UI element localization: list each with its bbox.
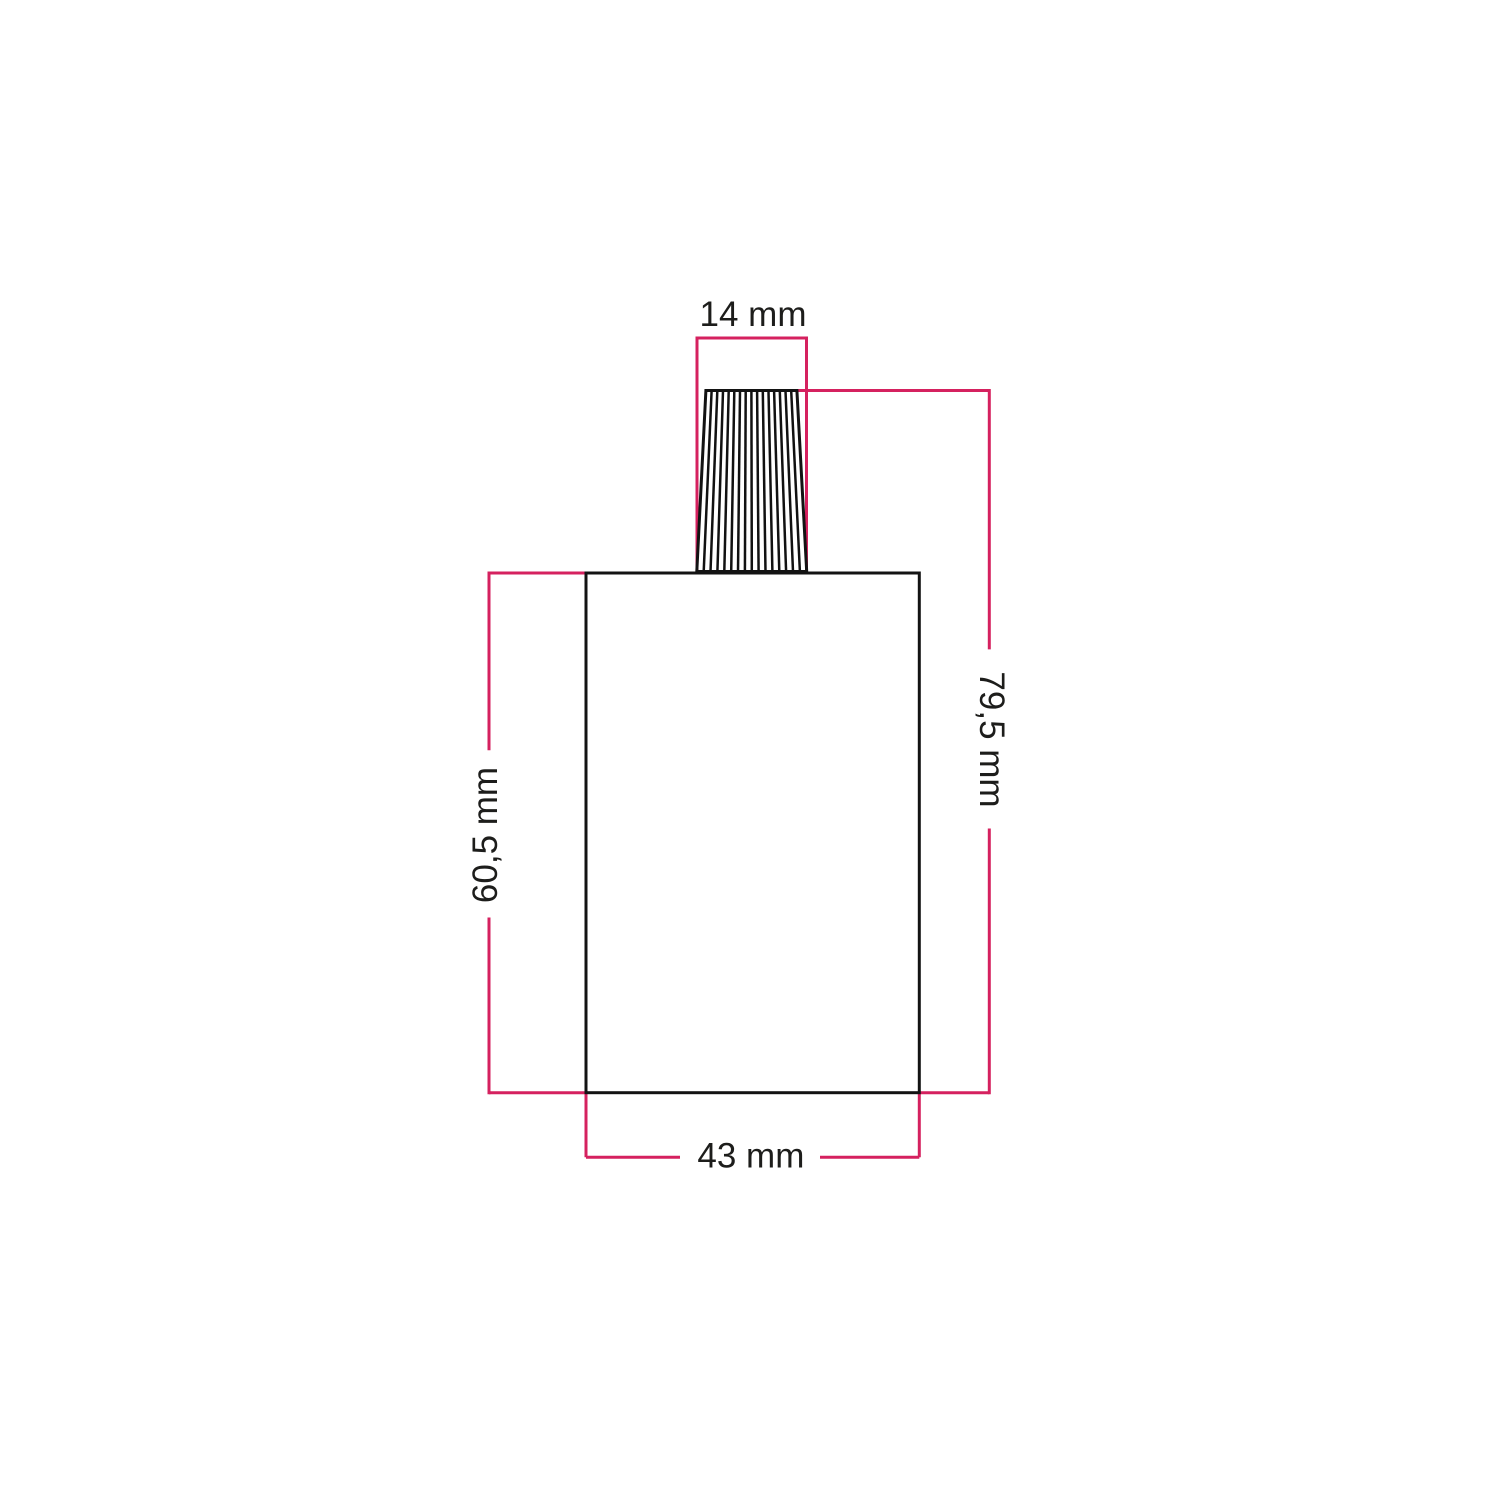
svg-text:14 mm: 14 mm	[700, 295, 807, 334]
svg-text:79,5 mm: 79,5 mm	[972, 671, 1011, 807]
svg-text:43 mm: 43 mm	[697, 1137, 804, 1176]
svg-text:60,5 mm: 60,5 mm	[466, 767, 505, 903]
